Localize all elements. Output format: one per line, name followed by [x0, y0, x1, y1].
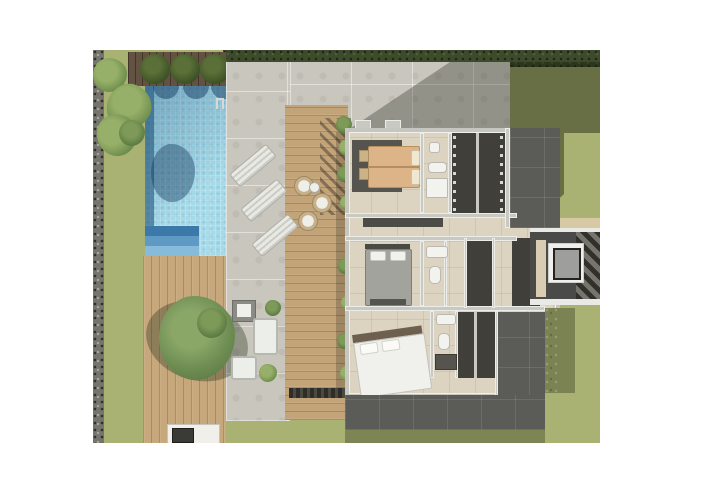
patio-shadow-on-lawn: [345, 430, 545, 443]
floor-plan-render: [93, 50, 600, 443]
wicker-chair: [298, 211, 318, 231]
planter-row: [289, 388, 346, 398]
pool-step: [145, 246, 199, 256]
pillow: [370, 251, 386, 261]
shower-tray: [426, 178, 448, 198]
outdoor-sofa: [253, 318, 278, 355]
pool-ladder-icon: [216, 98, 224, 100]
bed-master: [368, 146, 420, 188]
pillow: [390, 251, 406, 261]
gravel-border: [93, 50, 104, 443]
topiary-bush: [170, 54, 200, 84]
ne-terrace: [510, 128, 560, 228]
wall: [492, 238, 495, 308]
wall: [420, 241, 424, 306]
elevator-frame: [548, 243, 584, 283]
wall: [430, 311, 434, 378]
walk-in-closet-1: [451, 133, 505, 213]
closet-divider-wall: [476, 133, 479, 213]
swimming-pool: [145, 86, 226, 256]
toilet: [429, 266, 441, 284]
se-terrace: [495, 312, 545, 398]
pool-step: [145, 236, 199, 246]
closet-divider-wall: [474, 312, 477, 378]
wall: [495, 311, 498, 398]
toilet: [438, 333, 450, 350]
walk-in-closet-2: [458, 312, 495, 378]
page: { "scene": { "type": "3d-floor-plan-rend…: [0, 0, 705, 497]
toilet: [428, 162, 447, 173]
annex-wall-strip: [536, 240, 546, 297]
wall: [505, 128, 510, 228]
wall: [464, 238, 467, 308]
duvet-split: [369, 166, 419, 168]
hallway-console: [363, 218, 443, 227]
house-shadow-on-lawn-east: [545, 308, 575, 393]
elevator-shaft: [553, 248, 581, 280]
closet-shelving: [453, 135, 456, 211]
outdoor-armchair: [231, 356, 257, 380]
palm-tree: [119, 120, 145, 146]
sink-counter: [436, 314, 456, 325]
wall: [530, 299, 600, 305]
coffee-table-top: [237, 304, 251, 317]
wardrobe-room: [467, 240, 492, 308]
sink-counter: [426, 246, 448, 258]
sink: [429, 142, 440, 153]
wall: [420, 133, 424, 213]
south-patio: [345, 395, 545, 430]
shower-dark: [435, 354, 457, 370]
stair-tower: [530, 228, 600, 305]
pillow: [411, 169, 420, 185]
foot-bench: [359, 150, 369, 162]
pillow: [411, 150, 420, 166]
foot-bench: [359, 168, 369, 180]
wall: [448, 133, 452, 213]
closet-shelving: [500, 135, 503, 211]
bed-3: [352, 325, 430, 396]
house: [345, 128, 560, 398]
side-table: [309, 182, 320, 193]
wall: [345, 306, 545, 311]
bed-2: [365, 249, 412, 306]
bbq-grill-icon: [172, 428, 194, 443]
foot-bench: [370, 299, 406, 305]
topiary-bush: [140, 54, 170, 84]
bbq-counter: [167, 424, 220, 443]
wicker-chair: [312, 193, 332, 213]
pool-step: [145, 226, 199, 236]
